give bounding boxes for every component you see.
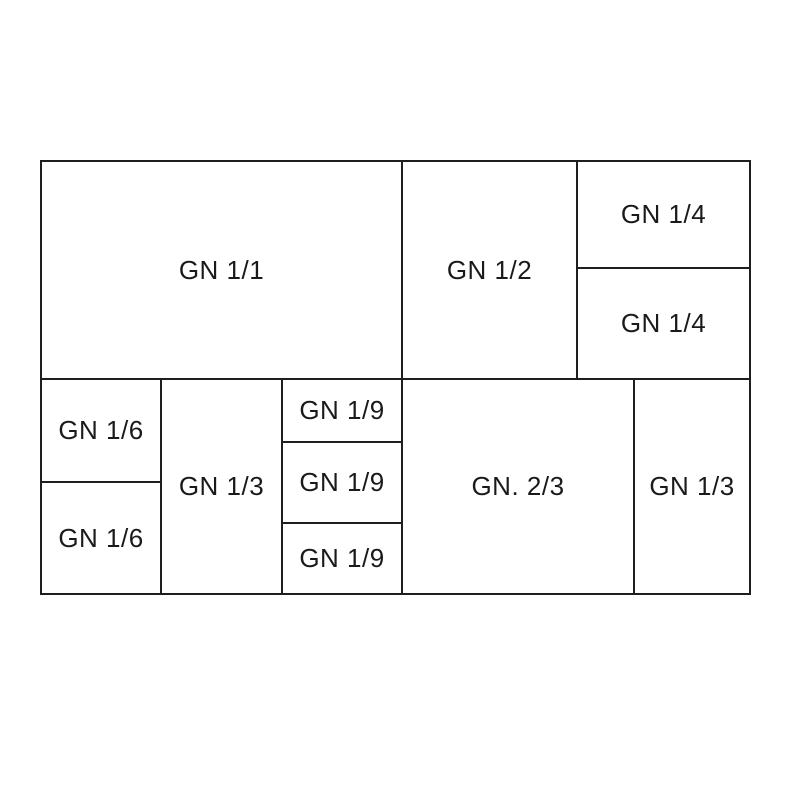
cell-label-gn-1-9-top: GN 1/9 (299, 395, 384, 426)
diagram-top-row: GN 1/1 GN 1/2 GN 1/4 GN 1/4 (42, 162, 749, 380)
cell-gn-1-9-top: GN 1/9 (283, 380, 401, 443)
gastronorm-sizes-diagram: GN 1/1 GN 1/2 GN 1/4 GN 1/4 GN 1/6 G (40, 160, 751, 595)
cell-gn-1-4-bottom: GN 1/4 (578, 269, 749, 378)
cell-gn-1-6-bottom: GN 1/6 (42, 483, 160, 593)
cell-gn-1-4-top: GN 1/4 (578, 162, 749, 269)
cell-label-gn-1-2: GN 1/2 (447, 255, 532, 286)
quarter-cells-column: GN 1/4 GN 1/4 (578, 162, 749, 378)
diagram-bottom-row: GN 1/6 GN 1/6 GN 1/3 GN 1/9 GN 1/9 GN 1/… (42, 380, 749, 593)
sixth-cells-column: GN 1/6 GN 1/6 (42, 380, 162, 593)
ninth-cells-column: GN 1/9 GN 1/9 GN 1/9 (283, 380, 403, 593)
cell-label-gn-1-9-middle: GN 1/9 (299, 467, 384, 498)
cell-gn-1-3-right: GN 1/3 (635, 380, 749, 593)
cell-label-gn-1-4-top: GN 1/4 (621, 199, 706, 230)
cell-label-gn-1-3-left: GN 1/3 (179, 471, 264, 502)
cell-gn-1-9-bottom: GN 1/9 (283, 524, 401, 593)
page-canvas: GN 1/1 GN 1/2 GN 1/4 GN 1/4 GN 1/6 G (0, 0, 800, 800)
cell-label-gn-1-6-bottom: GN 1/6 (58, 523, 143, 554)
cell-gn-1-2: GN 1/2 (403, 162, 578, 378)
cell-label-gn-1-9-bottom: GN 1/9 (299, 543, 384, 574)
cell-label-gn-1-4-bottom: GN 1/4 (621, 308, 706, 339)
cell-gn-1-6-top: GN 1/6 (42, 380, 160, 483)
cell-label-gn-2-3: GN. 2/3 (471, 471, 564, 502)
cell-gn-2-3: GN. 2/3 (403, 380, 635, 593)
cell-label-gn-1-1: GN 1/1 (179, 255, 264, 286)
cell-gn-1-3-left: GN 1/3 (162, 380, 283, 593)
cell-label-gn-1-3-right: GN 1/3 (649, 471, 734, 502)
cell-gn-1-9-middle: GN 1/9 (283, 443, 401, 524)
cell-gn-1-1: GN 1/1 (42, 162, 403, 378)
cell-label-gn-1-6-top: GN 1/6 (58, 415, 143, 446)
